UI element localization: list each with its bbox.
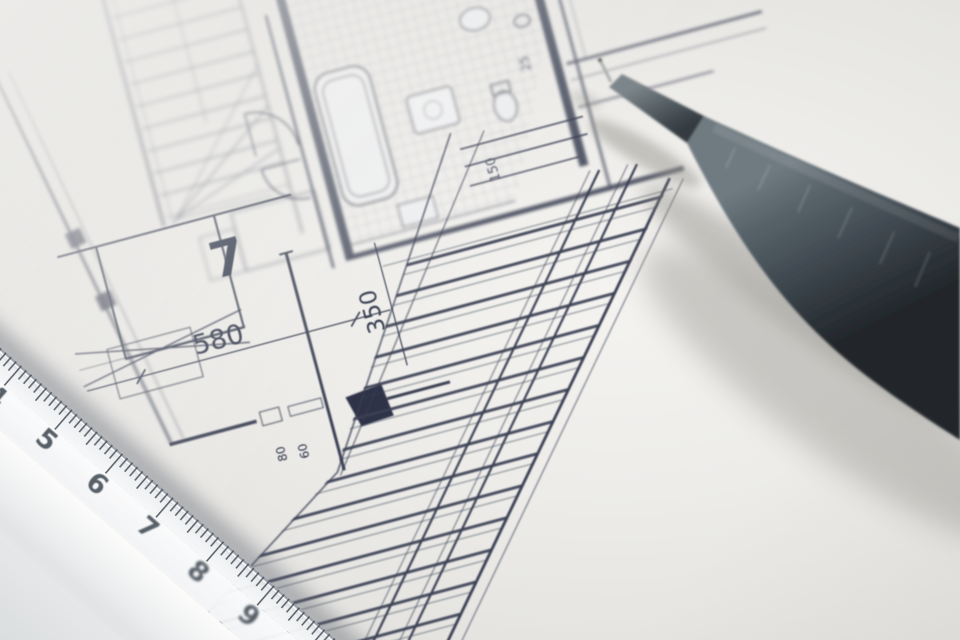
photo-stage: 580 7 350 80 60 — [0, 0, 960, 640]
pen — [0, 0, 960, 640]
pen-tip-lead — [598, 58, 611, 82]
